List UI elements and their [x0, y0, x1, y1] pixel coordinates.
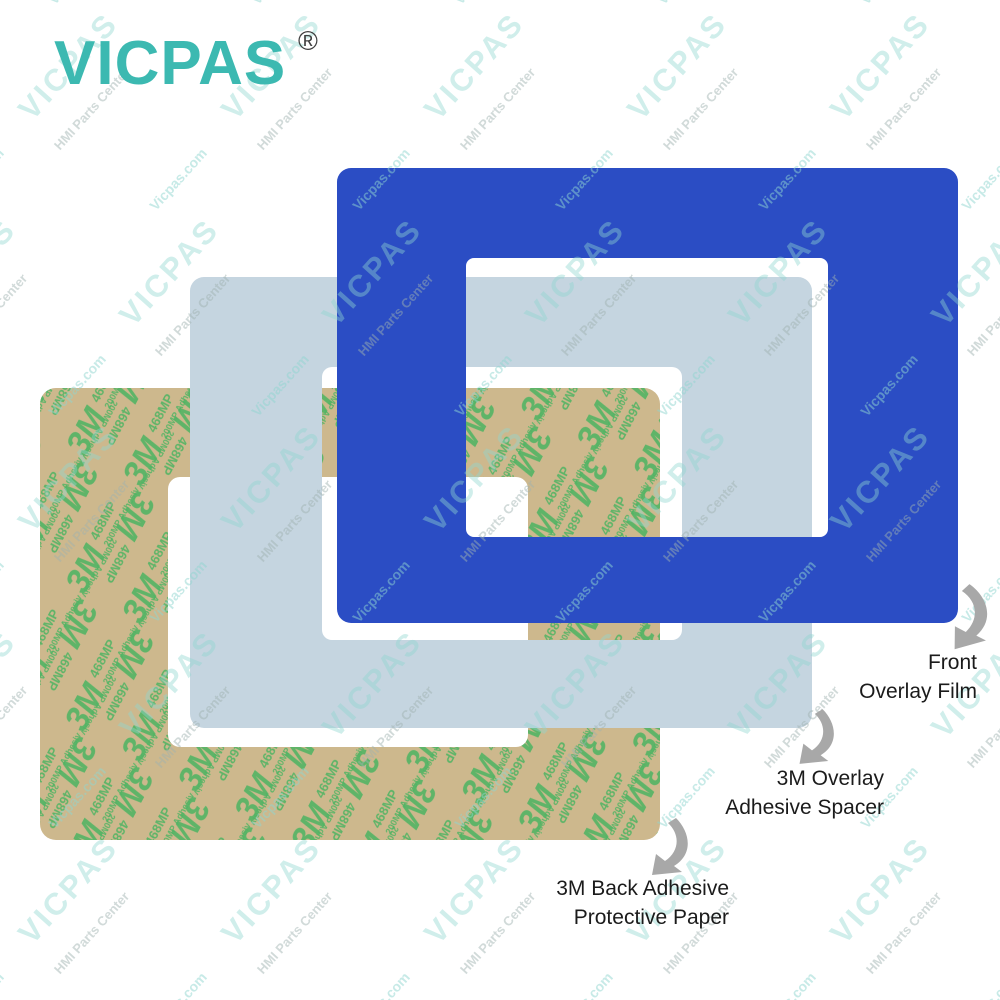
label-line: Protective Paper: [509, 903, 729, 932]
registered-trademark-icon: ®: [298, 26, 318, 57]
arrow-icon-back-paper: [640, 816, 690, 876]
label-back-adhesive-paper: 3M Back Adhesive Protective Paper: [509, 874, 729, 932]
front-overlay-film-layer: [0, 0, 1000, 1000]
label-front-overlay-film: Front Overlay Film: [777, 648, 977, 706]
label-adhesive-spacer: 3M Overlay Adhesive Spacer: [664, 764, 884, 822]
label-line: Overlay Film: [777, 677, 977, 706]
label-line: 3M Overlay: [664, 764, 884, 793]
label-line: Adhesive Spacer: [664, 793, 884, 822]
product-image: 3M 468MP 200MP Adhesive 3M 468MP 200MP A…: [0, 0, 1000, 1000]
label-line: 3M Back Adhesive: [509, 874, 729, 903]
brand-logo-text: VICPAS: [54, 29, 286, 98]
label-line: Front: [777, 648, 977, 677]
front-film-frame: [337, 168, 958, 623]
arrow-icon-adhesive-spacer: [788, 706, 836, 766]
brand-logo: VICPAS ®: [54, 28, 286, 99]
